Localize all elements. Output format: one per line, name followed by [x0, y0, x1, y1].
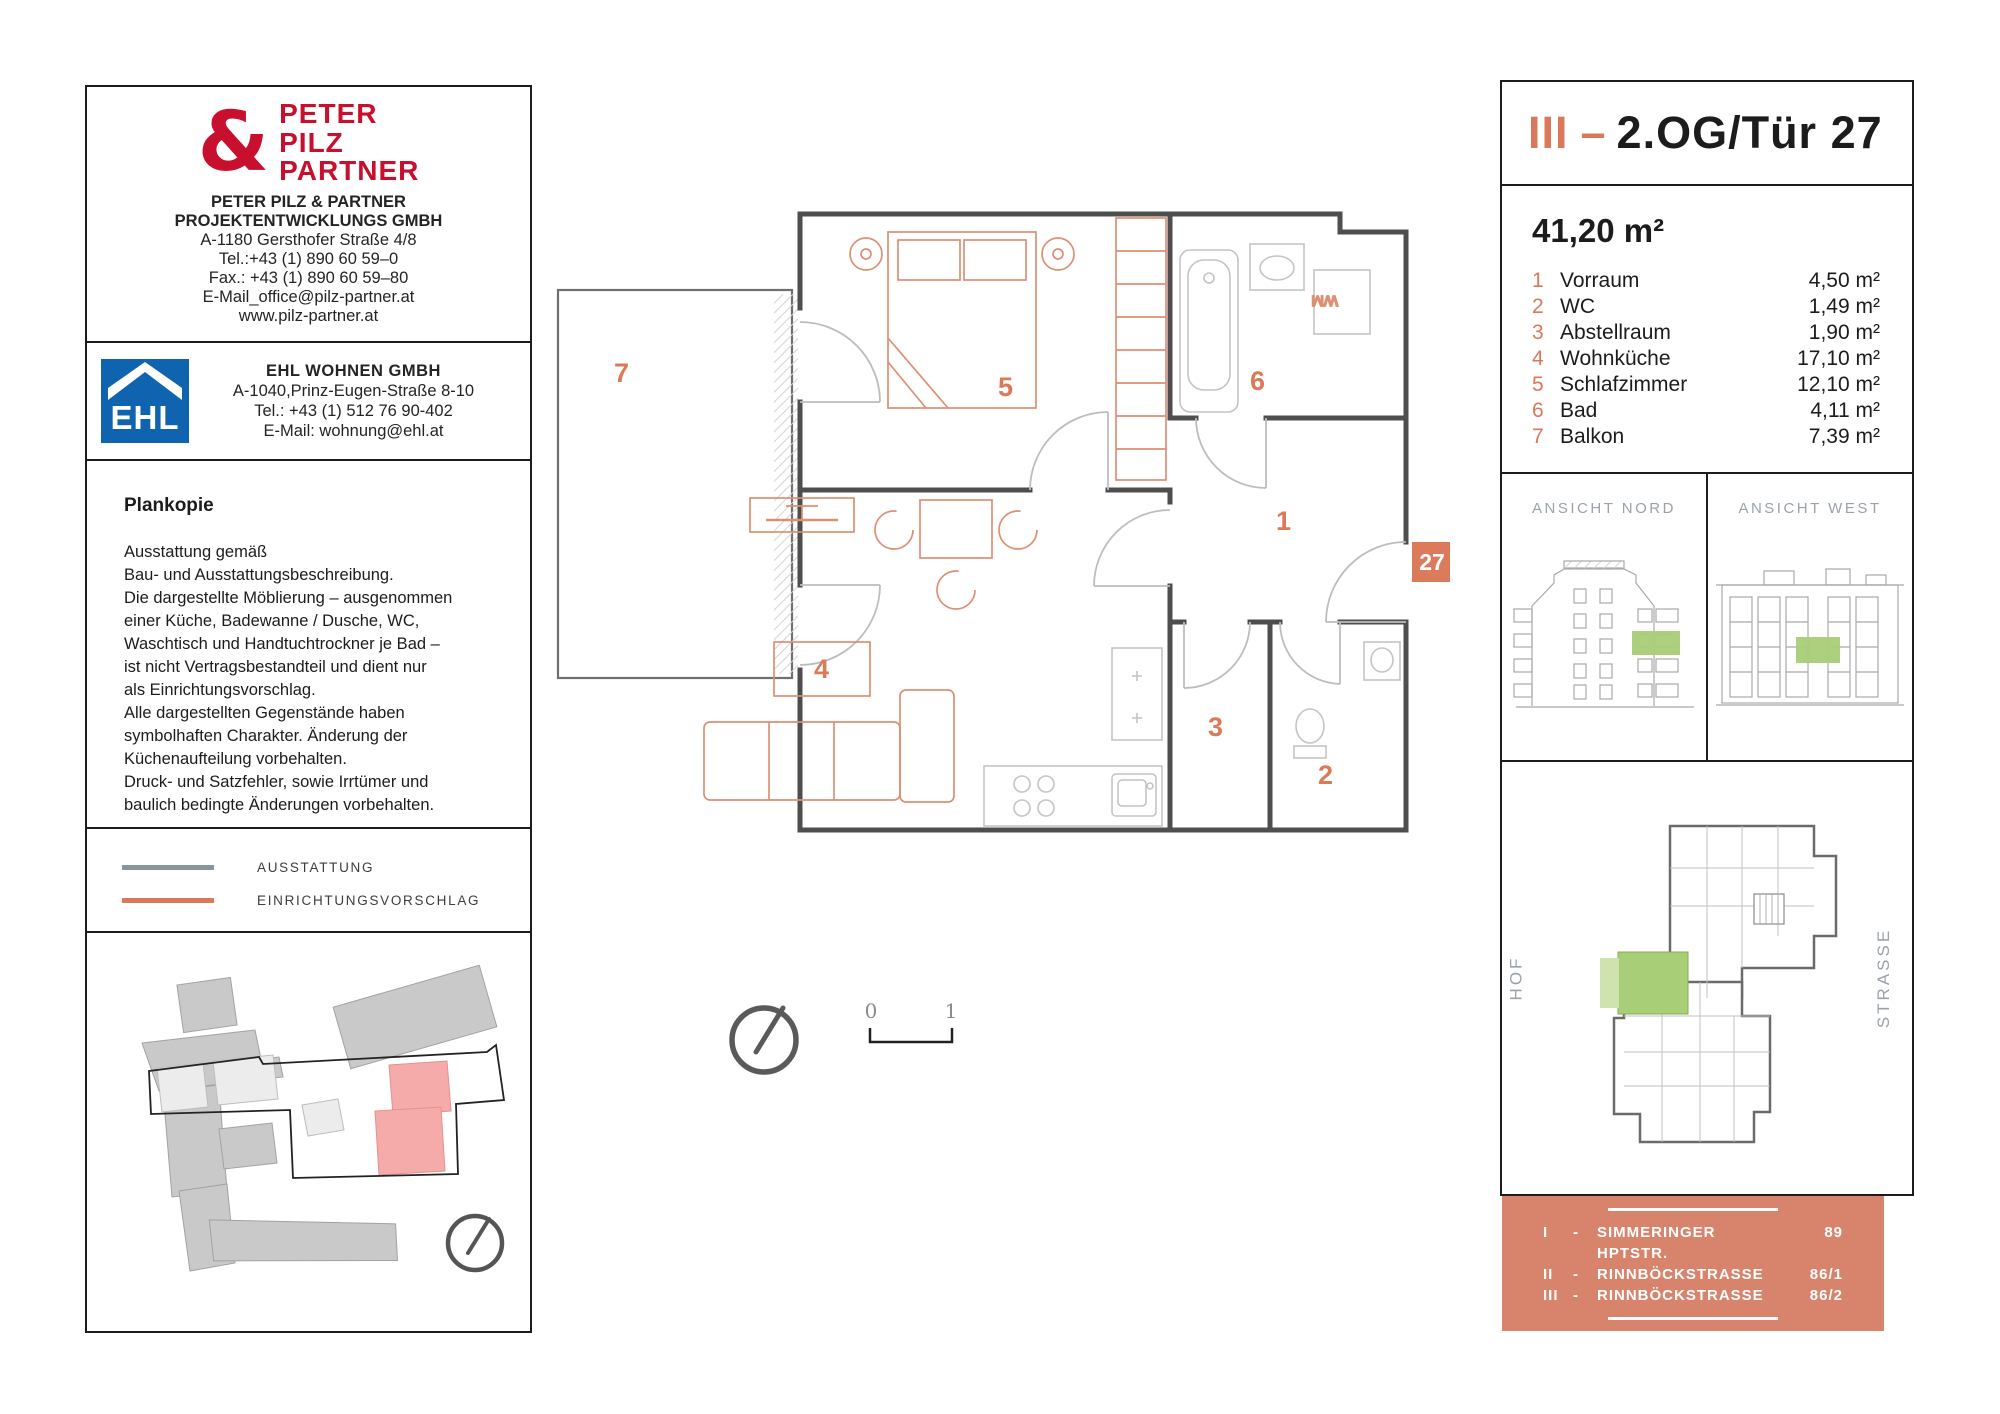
room-nr: 6: [1532, 398, 1560, 424]
address-bottom-rule: [1608, 1317, 1778, 1320]
elevation-west-label: ANSICHT WEST: [1708, 500, 1912, 517]
header-dash: –: [1581, 107, 1607, 158]
address-street: RINNBÖCKSTRASSE: [1597, 1264, 1791, 1285]
floor-overview-box: HOF STRASSE: [1500, 760, 1914, 1196]
site-plan-drawing: [87, 933, 530, 1331]
ehl-logo-icon: EHL: [101, 359, 189, 443]
scale-end-label: 1: [945, 999, 958, 1023]
ppp-logo-word: PETER: [279, 100, 419, 129]
ppp-email-line: E-Mail_office@pilz-partner.at: [87, 288, 530, 307]
room-list-box: 41,20 m² 1 Vorraum 4,50 m² 2 WC 1,49 m² …: [1500, 184, 1914, 474]
project-address-box: I - SIMMERINGER HPTSTR. 89 II - RINNBÖCK…: [1502, 1196, 1884, 1331]
ehl-logo-text: EHL: [111, 399, 180, 436]
room-name: Abstellraum: [1560, 320, 1809, 346]
floor-plan-drawing: WM 1 2 3 4 5 6 7 27 0 1: [550, 190, 1450, 1090]
floor-overview-drawing: [1502, 776, 1912, 1180]
room-list-row: 5 Schlafzimmer 12,10 m²: [1532, 372, 1880, 398]
window-band: [774, 294, 798, 674]
site-plan-box: [85, 931, 532, 1333]
room-number-labels: 1 2 3 4 5 6 7: [614, 358, 1333, 790]
sofa: [704, 690, 954, 802]
room-nr: 3: [1532, 320, 1560, 346]
elevation-west-drawing: [1708, 521, 1912, 741]
project-roman-numeral: III: [1528, 107, 1569, 158]
north-arrow-icon: [732, 1008, 796, 1072]
ehl-company-line: EHL WOHNEN GMBH: [189, 361, 518, 381]
room-number-vorraum: 1: [1276, 506, 1291, 536]
toilet: [1294, 709, 1326, 758]
ppp-ampersand-icon: &: [198, 97, 270, 189]
door-swings: [800, 322, 1406, 688]
elevation-west-highlight: [1796, 637, 1840, 663]
address-number: 86/1: [1791, 1264, 1843, 1285]
unit-title: III–2.OG/Tür 27: [1528, 107, 1883, 159]
unit-number-badge: 27: [1412, 542, 1450, 582]
room-area: 1,90 m²: [1809, 320, 1880, 346]
address-dash: -: [1573, 1222, 1597, 1264]
ehl-email-line: E-Mail: wohnung@ehl.at: [189, 421, 518, 441]
room-area: 1,49 m²: [1809, 294, 1880, 320]
room-name: Schlafzimmer: [1560, 372, 1797, 398]
room-number-abstellraum: 3: [1208, 712, 1223, 742]
room-area: 12,10 m²: [1797, 372, 1880, 398]
legend-box: AUSSTATTUNG EINRICHTUNGSVORSCHLAG: [85, 827, 532, 933]
room-nr: 7: [1532, 424, 1560, 450]
plankopie-line: Bau- und Ausstattungsbeschreibung.: [124, 564, 506, 587]
room-name: Bad: [1560, 398, 1810, 424]
room-area: 4,11 m²: [1810, 398, 1880, 424]
room-number-wohnkueche: 4: [814, 654, 829, 684]
room-area: 7,39 m²: [1809, 424, 1880, 450]
site-building-light: [157, 1063, 208, 1112]
wm-label: WM: [1311, 292, 1338, 309]
total-area: 41,20 m²: [1532, 212, 1880, 250]
plankopie-line: Alle dargestellten Gegenstände haben: [124, 702, 506, 725]
plankopie-line: Waschtisch und Handtuchtrockner je Bad –: [124, 633, 506, 656]
address-roman: III: [1543, 1285, 1573, 1306]
plankopie-line: Druck- und Satzfehler, sowie Irrtümer un…: [124, 771, 506, 794]
plankopie-line: Küchenaufteilung vorbehalten.: [124, 748, 506, 771]
plankopie-title: Plankopie: [124, 495, 506, 517]
room-number-wc: 2: [1318, 760, 1333, 790]
ppp-company-line: PROJEKTENTWICKLUNGS GMBH: [87, 212, 530, 231]
address-roman: II: [1543, 1264, 1573, 1285]
scale-start-label: 0: [865, 999, 878, 1023]
plankopie-line: symbolhaften Charakter. Änderung der: [124, 725, 506, 748]
address-street: RINNBÖCKSTRASSE: [1597, 1285, 1791, 1306]
ppp-letterhead-box: & PETER PILZ PARTNER PETER PILZ & PARTNE…: [85, 85, 532, 343]
room-nr: 5: [1532, 372, 1560, 398]
bed: [888, 232, 1036, 408]
ehl-address-block: EHL WOHNEN GMBH A-1040,Prinz-Eugen-Straß…: [189, 361, 518, 441]
room-list-row: 4 Wohnküche 17,10 m²: [1532, 346, 1880, 372]
address-number: 86/2: [1791, 1285, 1843, 1306]
ppp-website-line: www.pilz-partner.at: [87, 307, 530, 326]
wardrobe: [1116, 218, 1166, 480]
plankopie-disclaimer-box: Plankopie Ausstattung gemäß Bau- und Aus…: [85, 459, 532, 829]
legend-item-einrichtungsvorschlag: EINRICHTUNGSVORSCHLAG: [122, 887, 530, 913]
strasse-label: STRASSE: [1874, 928, 1894, 1028]
highlighted-building: [389, 1061, 451, 1115]
kitchen-counter: [984, 648, 1162, 826]
ehl-phone-line: Tel.: +43 (1) 512 76 90-402: [189, 401, 518, 421]
room-list: 1 Vorraum 4,50 m² 2 WC 1,49 m² 3 Abstell…: [1532, 268, 1880, 450]
elevation-west-box: ANSICHT WEST: [1706, 472, 1914, 762]
address-row: II - RINNBÖCKSTRASSE 86/1: [1543, 1264, 1843, 1285]
room-list-row: 2 WC 1,49 m²: [1532, 294, 1880, 320]
ppp-fax-line: Fax.: +43 (1) 890 60 59–80: [87, 269, 530, 288]
room-list-row: 1 Vorraum 4,50 m²: [1532, 268, 1880, 294]
elevation-nord-drawing: [1502, 521, 1706, 741]
address-dash: -: [1573, 1285, 1597, 1306]
ppp-address-block: PETER PILZ & PARTNER PROJEKTENTWICKLUNGS…: [87, 193, 530, 326]
plankopie-line: Ausstattung gemäß: [124, 541, 506, 564]
ppp-company-line: PETER PILZ & PARTNER: [87, 193, 530, 212]
room-name: Wohnküche: [1560, 346, 1797, 372]
room-list-row: 7 Balkon 7,39 m²: [1532, 424, 1880, 450]
ppp-logo-words: PETER PILZ PARTNER: [279, 100, 419, 186]
room-list-row: 3 Abstellraum 1,90 m²: [1532, 320, 1880, 346]
unit-title-text: 2.OG/Tür 27: [1617, 107, 1883, 158]
plan-sheet: & PETER PILZ PARTNER PETER PILZ & PARTNE…: [0, 0, 2000, 1414]
wc-sink: [1364, 642, 1400, 680]
address-row: I - SIMMERINGER HPTSTR. 89: [1543, 1222, 1843, 1264]
scale-bar: 0 1: [865, 999, 958, 1042]
highlighted-building: [375, 1107, 445, 1175]
room-number-schlafzimmer: 5: [998, 372, 1013, 402]
room-nr: 4: [1532, 346, 1560, 372]
ppp-phone-line: Tel.:+43 (1) 890 60 59–0: [87, 250, 530, 269]
ausstattung-line-swatch: [122, 865, 214, 870]
plankopie-line: als Einrichtungsvorschlag.: [124, 679, 506, 702]
einrichtungsvorschlag-label: EINRICHTUNGSVORSCHLAG: [257, 893, 480, 908]
ppp-address-line: A-1180 Gersthofer Straße 4/8: [87, 231, 530, 250]
room-list-row: 6 Bad 4,11 m²: [1532, 398, 1880, 424]
plankopie-line: baulich bedingte Änderungen vorbehalten.: [124, 794, 506, 817]
ausstattung-label: AUSSTATTUNG: [257, 860, 374, 875]
bathtub: [1180, 250, 1238, 412]
table-with-chairs: [875, 500, 1037, 609]
plankopie-line: ist nicht Vertragsbestandteil und dient …: [124, 656, 506, 679]
room-name: WC: [1560, 294, 1809, 320]
address-row: III - RINNBÖCKSTRASSE 86/2: [1543, 1285, 1843, 1306]
nightstand-lamp: [850, 238, 1074, 270]
site-building: [219, 1123, 277, 1169]
address-top-rule: [1608, 1208, 1778, 1211]
unit-number-text: 27: [1419, 549, 1445, 575]
room-nr: 2: [1532, 294, 1560, 320]
balcony: [558, 290, 798, 678]
ehl-address-line: A-1040,Prinz-Eugen-Straße 8-10: [189, 381, 518, 401]
site-building-light: [302, 1099, 344, 1136]
ppp-logo: & PETER PILZ PARTNER: [87, 97, 530, 189]
unit-header-box: III–2.OG/Tür 27: [1500, 80, 1914, 186]
room-area: 4,50 m²: [1809, 268, 1880, 294]
ehl-letterhead-box: EHL EHL WOHNEN GMBH A-1040,Prinz-Eugen-S…: [85, 341, 532, 461]
site-building: [204, 1198, 403, 1286]
address-dash: -: [1573, 1264, 1597, 1285]
hof-label: HOF: [1506, 956, 1526, 1001]
site-north-arrow-icon: [448, 1216, 502, 1270]
address-rows: I - SIMMERINGER HPTSTR. 89 II - RINNBÖCK…: [1543, 1222, 1843, 1306]
room-area: 17,10 m²: [1797, 346, 1880, 372]
highlighted-balcony: [1600, 958, 1619, 1008]
room-number-balkon: 7: [614, 358, 629, 388]
highlighted-apartment: [1618, 952, 1688, 1014]
room-number-bad: 6: [1250, 366, 1265, 396]
bathroom-sink: [1250, 244, 1304, 290]
plankopie-line: Die dargestellte Möblierung – ausgenomme…: [124, 587, 506, 610]
einrichtungsvorschlag-line-swatch: [122, 898, 214, 903]
address-street: SIMMERINGER HPTSTR.: [1597, 1222, 1791, 1264]
ppp-logo-word: PILZ: [279, 129, 419, 158]
ppp-logo-word: PARTNER: [279, 157, 419, 186]
address-roman: I: [1543, 1222, 1573, 1264]
elevation-nord-highlight: [1632, 631, 1680, 655]
room-nr: 1: [1532, 268, 1560, 294]
legend-item-ausstattung: AUSSTATTUNG: [122, 854, 530, 880]
room-name: Vorraum: [1560, 268, 1809, 294]
plankopie-body: Ausstattung gemäß Bau- und Ausstattungsb…: [124, 541, 506, 817]
elevation-nord-label: ANSICHT NORD: [1502, 500, 1706, 517]
room-name: Balkon: [1560, 424, 1809, 450]
address-number: 89: [1791, 1222, 1843, 1264]
elevation-nord-box: ANSICHT NORD: [1500, 472, 1708, 762]
stair-core: [1754, 894, 1784, 924]
site-building: [177, 977, 237, 1032]
plankopie-line: einer Küche, Badewanne / Dusche, WC,: [124, 610, 506, 633]
